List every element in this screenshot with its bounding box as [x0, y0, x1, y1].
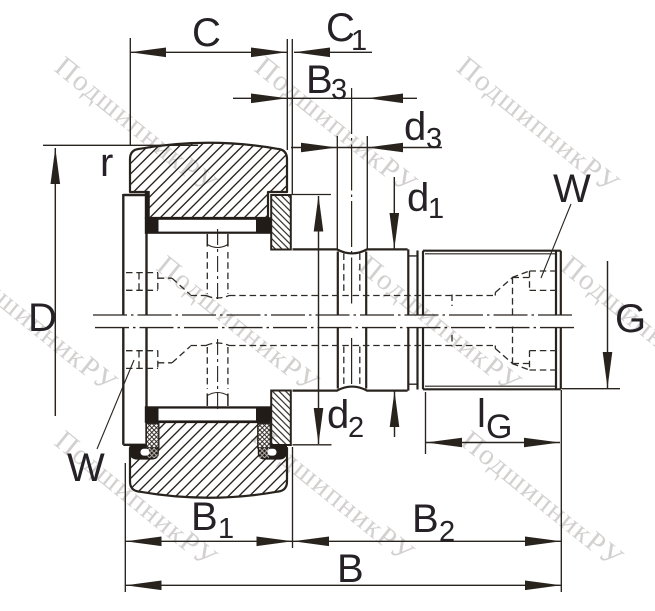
svg-text:C: C	[192, 11, 221, 55]
svg-text:3: 3	[426, 123, 442, 155]
svg-text:3: 3	[331, 74, 347, 106]
svg-text:1: 1	[351, 25, 367, 57]
svg-text:2: 2	[439, 516, 455, 548]
svg-text:B: B	[306, 58, 333, 102]
svg-text:G: G	[486, 408, 512, 446]
svg-text:1: 1	[218, 513, 234, 545]
svg-text:B: B	[337, 547, 364, 591]
svg-text:r: r	[100, 141, 113, 185]
svg-text:d: d	[407, 176, 429, 220]
svg-text:G: G	[615, 297, 646, 341]
svg-text:2: 2	[348, 412, 364, 444]
svg-text:B: B	[412, 497, 439, 541]
svg-text:d: d	[404, 105, 426, 149]
svg-text:1: 1	[428, 193, 444, 225]
svg-text:W: W	[67, 446, 105, 490]
svg-text:D: D	[28, 296, 57, 340]
svg-text:W: W	[553, 167, 591, 211]
svg-text:B: B	[191, 495, 218, 539]
svg-text:l: l	[477, 392, 486, 436]
svg-text:d: d	[327, 393, 349, 437]
